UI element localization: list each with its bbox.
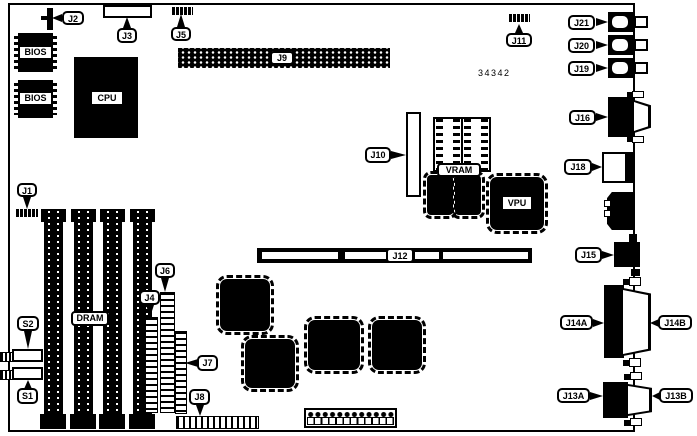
s1-switch — [12, 367, 43, 380]
j13-dshell — [628, 384, 652, 416]
motherboard-diagram: J2 J3 J5 BIOS BIOS CPU J9 J11 34342 J21 … — [0, 0, 697, 436]
callout-j4: J4 — [139, 290, 160, 305]
j14-dshell — [623, 288, 651, 356]
cpu-chip-label: CPU — [92, 92, 122, 104]
callout-j8: J8 — [189, 389, 210, 405]
j21-pointer — [596, 18, 608, 26]
j4-pointer — [146, 305, 154, 317]
j14a-pointer — [593, 319, 604, 327]
j5-pointer — [177, 14, 185, 27]
j6-pointer — [161, 278, 169, 292]
vram-chip-2 — [455, 175, 481, 215]
simm-slot-2-foot — [70, 414, 96, 429]
j1-pointer — [23, 197, 31, 209]
j15-stub-bottom — [631, 269, 640, 276]
j15-stub-top — [629, 234, 637, 242]
callout-j18: J18 — [564, 159, 592, 175]
qfp-chip-4 — [372, 320, 422, 370]
callout-j6: J6 — [155, 263, 175, 278]
callout-j15: J15 — [575, 247, 602, 263]
j14-connector — [604, 285, 624, 358]
callout-j9: J9 — [270, 51, 294, 65]
j15-pointer — [602, 251, 614, 259]
din-connector — [607, 192, 634, 230]
vpu-chip-label: VPU — [503, 197, 531, 209]
power-connector — [304, 408, 397, 428]
callout-j2: J2 — [62, 11, 84, 25]
part-number: 34342 — [478, 68, 511, 78]
j10-pointer — [391, 151, 406, 159]
vram-chip-1 — [427, 175, 453, 215]
j12-slot-segment — [262, 252, 338, 259]
j14-screw-bottom — [629, 358, 641, 367]
callout-j21: J21 — [568, 15, 595, 30]
j14-screw-top — [629, 277, 641, 286]
j15-connector — [614, 242, 640, 267]
j13-screw-top — [630, 372, 642, 380]
callout-j14b: J14B — [658, 315, 692, 330]
j2-connector-tab — [41, 16, 47, 20]
j10-socket — [406, 112, 421, 197]
simm-slot-1 — [44, 211, 63, 415]
callout-j14a: J14A — [560, 315, 593, 330]
j7-connector — [175, 331, 187, 414]
j20-pointer — [596, 41, 608, 49]
callout-j19: J19 — [568, 61, 595, 76]
j8-connector — [176, 416, 259, 429]
j16-screw-bottom — [632, 136, 644, 143]
j12-slot-segment — [345, 252, 387, 259]
s2-pointer — [24, 331, 32, 349]
callout-j7: J7 — [197, 355, 218, 371]
bios-chip-1-label: BIOS — [20, 47, 51, 58]
callout-j10: J10 — [365, 147, 391, 163]
dram-label: DRAM — [71, 311, 109, 326]
j13-screw-bottom-nub — [624, 420, 630, 426]
j3-pointer — [123, 17, 131, 28]
j16-screw-bottom-nub — [627, 137, 632, 142]
callout-s1: S1 — [17, 388, 38, 404]
qfp-chip-1 — [220, 279, 270, 331]
j18-connector-edge — [627, 152, 634, 183]
j18-connector — [602, 152, 627, 183]
callout-j1: J1 — [17, 183, 37, 197]
j18-pointer — [592, 163, 602, 171]
j4-connector — [145, 317, 158, 413]
j16-connector — [608, 97, 634, 137]
callout-j13b: J13B — [659, 388, 693, 403]
j16-dshell — [634, 100, 651, 133]
qfp-chip-3 — [308, 320, 360, 370]
callout-j13a: J13A — [557, 388, 590, 403]
j2-pointer — [52, 14, 62, 22]
j19-jack-opening — [612, 62, 628, 74]
j6-connector — [160, 292, 175, 413]
j13-connector — [603, 382, 628, 418]
j12-slot-segment — [443, 252, 528, 259]
simm-slot-3-foot — [99, 414, 125, 429]
simm-slot-1-foot — [40, 414, 66, 429]
j21-jack-opening — [612, 16, 628, 28]
j19-pointer — [596, 64, 608, 72]
j19-jack-stub — [634, 62, 648, 74]
callout-j11: J11 — [506, 33, 532, 47]
din-notch-1 — [604, 200, 611, 207]
vram-label: VRAM — [437, 163, 481, 177]
callout-j12: J12 — [386, 248, 414, 263]
j21-jack-stub — [634, 16, 648, 28]
qfp-chip-2 — [245, 339, 295, 388]
j1-pin-header — [16, 209, 38, 217]
callout-s2: S2 — [17, 316, 39, 331]
j13-screw-top-nub — [624, 374, 630, 380]
j12-slot-segment — [415, 252, 439, 259]
j8-pointer — [196, 405, 204, 416]
j20-jack-opening — [612, 39, 628, 51]
j11-pin-header — [509, 14, 530, 22]
power-connector-cells — [307, 417, 394, 425]
callout-j5: J5 — [171, 27, 191, 41]
callout-j20: J20 — [568, 38, 595, 53]
s2-switch — [12, 349, 43, 362]
j11-pointer — [515, 24, 523, 33]
j14-screw-bottom-nub — [623, 360, 629, 366]
bios-chip-2-label: BIOS — [20, 93, 51, 104]
j20-jack-stub — [634, 39, 648, 51]
j16-pointer — [596, 113, 608, 121]
din-notch-2 — [604, 210, 611, 217]
callout-j16: J16 — [569, 110, 596, 125]
callout-j3: J3 — [117, 28, 137, 43]
j13-screw-bottom — [630, 418, 642, 426]
j13a-pointer — [590, 392, 603, 400]
simm-slot-4-foot — [129, 414, 155, 429]
